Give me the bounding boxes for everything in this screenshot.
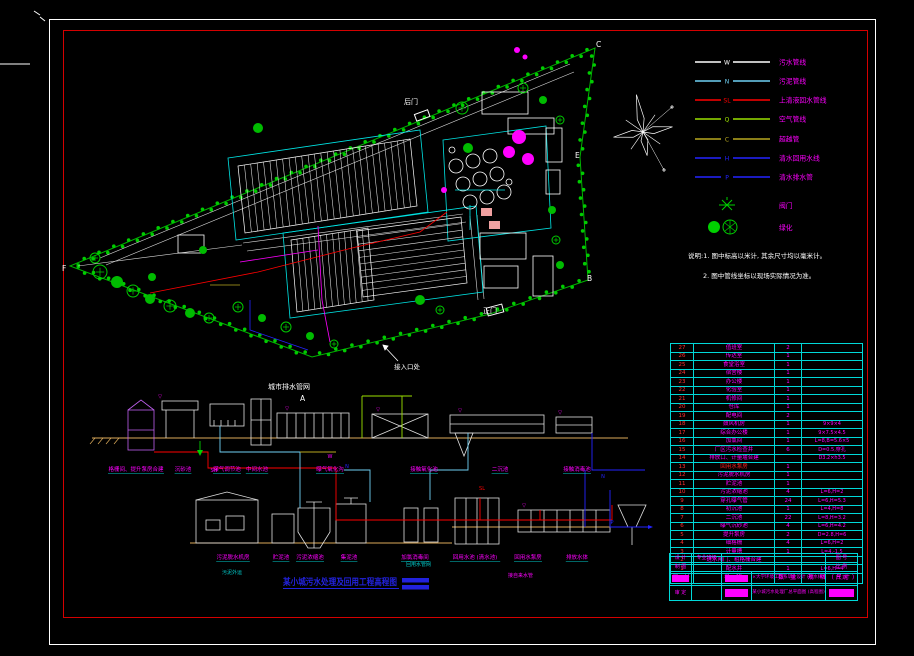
equipment-cell-qt: 1: [775, 378, 802, 387]
flow-label: 二沉池: [492, 465, 509, 473]
site-labels: 后门 正门 接入口处 城市排水管网 CEBFA: [62, 40, 601, 403]
flow-label: 排放水体: [566, 553, 589, 561]
flow-label: 曝气氧化沟: [316, 465, 344, 473]
hatch-lines: [244, 140, 466, 311]
pump-house: [128, 400, 154, 450]
tb-org-text: ××大学环境工程系毕业设计 (给水排水): [751, 571, 826, 586]
equipment-cell-sp: [802, 480, 863, 489]
elevation-mark: ▽: [458, 408, 462, 414]
equipment-cell-no: 25: [671, 361, 694, 370]
equipment-cell-no: 5: [671, 531, 694, 540]
flow-extra-labels: 接自来水管 污泥外运 回用水管网: [222, 561, 533, 579]
equipment-cell-no: 22: [671, 386, 694, 395]
equipment-cell-no: 6: [671, 522, 694, 531]
equipment-row: 25食堂浴室1: [671, 361, 863, 370]
legend-label: 超越管: [779, 135, 800, 144]
legend-label: 空气管线: [779, 115, 806, 124]
cad-drawing-canvas: 后门 正门 接入口处 城市排水管网 CEBFA W污水管线N污泥管线SL上清液回…: [0, 0, 914, 656]
equipment-cell-no: 9: [671, 497, 694, 506]
equipment-row: 7二沉池22L=8,H=3.2: [671, 514, 863, 523]
boundary-foliage: [76, 48, 596, 356]
equipment-cell-nm: 提升泵房: [694, 531, 775, 540]
equipment-cell-no: 24: [671, 369, 694, 378]
equipment-cell-sp: [802, 403, 863, 412]
equipment-cell-no: 8: [671, 505, 694, 514]
legend-marker: SL: [723, 98, 731, 105]
equipment-row: 13回用水泵房1: [671, 463, 863, 472]
equipment-cell-nm: 加氯间: [694, 437, 775, 446]
buildings: [178, 92, 562, 296]
equipment-cell-sp: 9×7.5×4.5: [802, 429, 863, 438]
equipment-row: 14排放口、计量堰合建D3.2×h3.5: [671, 454, 863, 463]
equipment-cell-qt: 24: [775, 497, 802, 506]
sludge-out-label: 污泥外运: [222, 569, 242, 576]
equipment-cell-nm: 综合办公楼: [694, 429, 775, 438]
flow-label: 接触氧化池: [410, 465, 438, 473]
legend-label: 清水排水管: [779, 173, 813, 182]
equipment-cell-nm: 厂区污水检查井: [694, 446, 775, 455]
tb-date-label: 日 期: [825, 571, 858, 586]
equipment-cell-sp: [802, 386, 863, 395]
equipment-cell-no: 11: [671, 480, 694, 489]
back-gate: [414, 110, 430, 121]
site-plan: [70, 47, 596, 361]
tb-blank-4: [691, 571, 722, 586]
tb-check-bar: [669, 571, 692, 586]
equipment-row: 17综合办公楼19×7.5×4.5: [671, 429, 863, 438]
elevation-mark: ▽: [522, 503, 526, 509]
equipment-cell-qt: 2: [775, 344, 802, 353]
legend-marker: H: [725, 156, 730, 163]
flow-title-group: 某小城污水处理及回用工程高程图: [283, 576, 399, 589]
flow-label: 加氯消毒间: [401, 553, 429, 561]
equipment-cell-nm: 排放口、计量堰合建: [694, 454, 775, 463]
equipment-cell-qt: 1: [775, 471, 802, 480]
inlet-arrow: [383, 345, 398, 361]
digester-tank-cluster: [449, 147, 512, 229]
equipment-row: 23办公楼1: [671, 378, 863, 387]
equipment-cell-no: 13: [671, 463, 694, 472]
pipe-marker: P: [610, 520, 613, 526]
north-compass: [613, 95, 674, 172]
equipment-cell-nm: 回用水泵房: [694, 463, 775, 472]
equipment-cell-qt: 1: [775, 480, 802, 489]
equipment-cell-nm: 配电间: [694, 412, 775, 421]
equipment-cell-nm: 污泥浓缩池: [694, 488, 775, 497]
equipment-row: 20仓库1: [671, 403, 863, 412]
equipment-row: 8初沉池1L=4,H=8: [671, 505, 863, 514]
legend-marker: C: [725, 137, 729, 144]
equipment-cell-sp: [802, 344, 863, 353]
equipment-row: 11贮泥池1: [671, 480, 863, 489]
equipment-table: 27值班室226传达室125食堂浴室124宿舍楼123办公楼122化验室121机…: [670, 343, 858, 584]
elevation-mark: ▽: [376, 407, 380, 413]
legend-item-valve-symbol: 阀门: [719, 197, 793, 210]
equipment-row: 24宿舍楼1: [671, 369, 863, 378]
equipment-cell-nm: 仓库: [694, 403, 775, 412]
legend-item-air-line: Q空气管线: [695, 115, 806, 124]
equipment-cell-sp: L=8,B=5.6×5: [802, 437, 863, 446]
flow-label: 污泥浓缩池: [296, 553, 324, 561]
legend-item-supernatant-line: SL上清液回水管线: [695, 96, 827, 105]
equipment-cell-qt: 1: [775, 361, 802, 370]
equipment-cell-nm: 初沉池: [694, 505, 775, 514]
equipment-cell-nm: 二沉池: [694, 514, 775, 523]
ground-lines: [90, 438, 645, 543]
legend-item-sludge-line: N污泥管线: [695, 77, 806, 86]
equipment-row: 16加氯间1L=8,B=5.6×5: [671, 437, 863, 446]
note-line-1: 说明:1. 图中标高以米计, 其余尺寸均以毫米计。: [688, 251, 826, 260]
equipment-row: 5提升泵房2D=2.8,H=6: [671, 531, 863, 540]
equipment-cell-sp: [802, 471, 863, 480]
flow-label: 中间水池: [246, 465, 269, 473]
elevation-mark: ▽: [558, 410, 562, 416]
equipment-cell-no: 20: [671, 403, 694, 412]
legend-marker: Q: [725, 117, 730, 124]
equipment-cell-nm: 污泥脱水机房: [694, 471, 775, 480]
equipment-cell-sp: D3.2×h3.5: [802, 454, 863, 463]
legend-marker: P: [725, 175, 729, 182]
pipe-marker: N: [601, 474, 605, 480]
legend: W污水管线N污泥管线SL上清液回水管线Q空气管线C超越管H清水回用水线P清水排水…: [695, 58, 827, 235]
equipment-row: 21机修间1: [671, 395, 863, 404]
legend-item-greenery-symbol: 绿化: [708, 220, 793, 234]
equipment-row: 19配电间2: [671, 412, 863, 421]
equipment-row: 26传达室1: [671, 352, 863, 361]
equipment-cell-nm: 曝气沉砂池: [694, 522, 775, 531]
equipment-cell-no: 4: [671, 539, 694, 548]
equipment-cell-sp: [802, 412, 863, 421]
equipment-cell-qt: 1: [775, 505, 802, 514]
equipment-cell-qt: 1: [775, 429, 802, 438]
equipment-cell-no: 10: [671, 488, 694, 497]
equipment-cell-no: 26: [671, 352, 694, 361]
equipment-cell-nm: 食堂浴室: [694, 361, 775, 370]
pipe-marker: N: [345, 464, 349, 470]
equipment-row: 15厂区污水检查井6D=0.5,穿孔: [671, 446, 863, 455]
equipment-row: 27值班室2: [671, 344, 863, 353]
legend-label: 阀门: [779, 201, 793, 210]
roads: [78, 64, 574, 300]
notes: 说明:1. 图中标高以米计, 其余尺寸均以毫米计。 2. 图中管线坐标以现场实际…: [688, 251, 826, 280]
equipment-cell-no: 23: [671, 378, 694, 387]
equipment-cell-sp: L=6,H=2: [802, 488, 863, 497]
equipment-cell-sp: L=8,H=3.2: [802, 514, 863, 523]
legend-label: 污水管线: [779, 58, 806, 67]
legend-marker: W: [724, 60, 730, 67]
site-letter: F: [62, 264, 66, 273]
flow-title: 某小城污水处理及回用工程高程图: [283, 576, 397, 588]
reuse-net-label: 回用水管网: [406, 561, 431, 568]
equipment-cell-sp: 9×9×4: [802, 420, 863, 429]
flow-structures-upper: [128, 399, 592, 456]
equipment-cell-qt: 1: [775, 386, 802, 395]
tb-drawing-text: 某小城污水处理厂总平面图 (高程图): [751, 585, 826, 601]
tb-drawing-bar: [721, 585, 752, 601]
site-letter: A: [300, 394, 306, 403]
legend-label: 绿化: [779, 223, 793, 232]
equipment-cell-no: 12: [671, 471, 694, 480]
equipment-cell-nm: 机修间: [694, 395, 775, 404]
equipment-cell-qt: 2: [775, 412, 802, 421]
flow-label: 格栅间、提升泵房合建: [108, 465, 164, 473]
equipment-cell-no: 16: [671, 437, 694, 446]
site-letter: B: [587, 274, 592, 283]
equipment-cell-sp: [802, 395, 863, 404]
equipment-row: 9穿孔曝气管24L=6,H=5.3: [671, 497, 863, 506]
sedimentation-block: [291, 228, 374, 312]
flow-labels: 格栅间、提升泵房合建沉砂池曝气调节池中间水池曝气氧化沟接触氧化池二沉池接触消毒池…: [108, 394, 614, 562]
equipment-cell-nm: 贮泥池: [694, 480, 775, 489]
equipment-cell-sp: L=6,H=2: [802, 539, 863, 548]
tb-blank-5: [691, 585, 722, 601]
equipment-cell-qt: 1: [775, 437, 802, 446]
equipment-cell-nm: 办公楼: [694, 378, 775, 387]
site-letter: E: [575, 151, 580, 160]
equipment-cell-qt: 1: [775, 369, 802, 378]
flow-label: 回用水池 (清水池): [453, 553, 498, 561]
flow-label: 集泥池: [341, 553, 358, 561]
tb-org-bar: [721, 571, 752, 586]
equipment-cell-no: 27: [671, 344, 694, 353]
equipment-cell-sp: [802, 352, 863, 361]
main-gate-label: 正门: [483, 306, 497, 315]
legend-item-drain-line: P清水排水管: [695, 173, 813, 182]
equipment-cell-sp: D=2.8,H=6: [802, 531, 863, 540]
flow-label: 回用水泵房: [514, 553, 542, 561]
equipment-cell-qt: 6: [775, 446, 802, 455]
equipment-row: 6曝气沉砂池4L=6,H=4.2: [671, 522, 863, 531]
city-network-label: 城市排水管网: [268, 382, 310, 391]
tb-approve-label: 审 定: [669, 585, 692, 601]
equipment-cell-no: 14: [671, 454, 694, 463]
site-corner-letters: CEBFA: [62, 40, 601, 403]
equipment-cell-nm: 化验室: [694, 386, 775, 395]
legend-item-reuse-line: H清水回用水线: [695, 154, 820, 163]
corner-marks: [0, 11, 45, 64]
equipment-cell-nm: 鼓风机房: [694, 420, 775, 429]
equipment-cell-sp: [802, 369, 863, 378]
pipe-marker: SL: [479, 486, 485, 492]
equipment-cell-qt: 22: [775, 514, 802, 523]
equipment-cell-qt: 2: [775, 531, 802, 540]
equipment-row: 10污泥浓缩池4L=6,H=2: [671, 488, 863, 497]
equipment-row: 22化验室1: [671, 386, 863, 395]
equipment-cell-no: 18: [671, 420, 694, 429]
flow-label: 接触消毒池: [563, 465, 591, 473]
pipe-marker: W: [328, 454, 333, 460]
equipment-cell-qt: 1: [775, 352, 802, 361]
tb-sig-bar: [825, 585, 858, 601]
equipment-cell-qt: 1: [775, 420, 802, 429]
legend-label: 清水回用水线: [779, 154, 820, 163]
flow-label: 沉砂池: [175, 465, 192, 473]
equipment-cell-sp: L=6,H=4.2: [802, 522, 863, 531]
flow-label: 污泥脱水机房: [216, 553, 250, 561]
legend-item-bypass-line: C超越管: [695, 135, 800, 144]
equipment-cell-nm: 宿舍楼: [694, 369, 775, 378]
equipment-cell-nm: 传达室: [694, 352, 775, 361]
equipment-row: 18鼓风机房19×9×4: [671, 420, 863, 429]
equipment-cell-sp: [802, 361, 863, 370]
equipment-cell-nm: 值班室: [694, 344, 775, 353]
flow-label: 贮泥池: [273, 553, 290, 561]
tap-water-label: 接自来水管: [508, 572, 533, 579]
equipment-row: 4细格栅4L=6,H=2: [671, 539, 863, 548]
equipment-cell-qt: 4: [775, 522, 802, 531]
equipment-cell-nm: 穿孔曝气管: [694, 497, 775, 506]
equipment-cell-no: 21: [671, 395, 694, 404]
equipment-cell-no: 7: [671, 514, 694, 523]
legend-label: 上清液回水管线: [779, 96, 827, 105]
flow-pipes: [154, 396, 653, 529]
note-line-2: 2. 图中管线坐标以现场实际情况为准。: [703, 271, 815, 280]
equipment-row: 12污泥脱水机房1: [671, 471, 863, 480]
magenta-trees: [441, 47, 534, 193]
equipment-cell-sp: [802, 378, 863, 387]
equipment-cell-sp: L=4,H=8: [802, 505, 863, 514]
equipment-cell-no: 19: [671, 412, 694, 421]
equipment-cell-no: 15: [671, 446, 694, 455]
elevation-mark: ▽: [285, 406, 289, 412]
equipment-cell-sp: [802, 463, 863, 472]
equipment-cell-qt: 1: [775, 395, 802, 404]
back-gate-label: 后门: [404, 97, 418, 106]
equipment-cell-qt: 1: [775, 403, 802, 412]
equipment-cell-qt: [775, 454, 802, 463]
title-block: 设 计 专业班级 图 号 制 图 比 例 ××大学环境工程系毕业设计 (给水排水…: [670, 554, 858, 601]
pipe-marker: SH: [211, 468, 218, 474]
equipment-cell-nm: 细格栅: [694, 539, 775, 548]
legend-marker: N: [725, 79, 730, 86]
equipment-cell-no: 17: [671, 429, 694, 438]
inlet-label: 接入口处: [394, 362, 421, 371]
equipment-cell-qt: 4: [775, 488, 802, 497]
site-pipes: [150, 190, 505, 350]
equipment-cell-qt: 4: [775, 539, 802, 548]
title-bars: [402, 578, 429, 590]
equipment-cell-sp: D=0.5,穿孔: [802, 446, 863, 455]
elevation-mark: ▽: [158, 394, 162, 400]
equipment-cell-qt: 1: [775, 463, 802, 472]
site-letter: C: [596, 40, 601, 49]
legend-item-sewage-line: W污水管线: [695, 58, 806, 67]
legend-label: 污泥管线: [779, 77, 806, 86]
equipment-cell-sp: L=6,H=5.3: [802, 497, 863, 506]
